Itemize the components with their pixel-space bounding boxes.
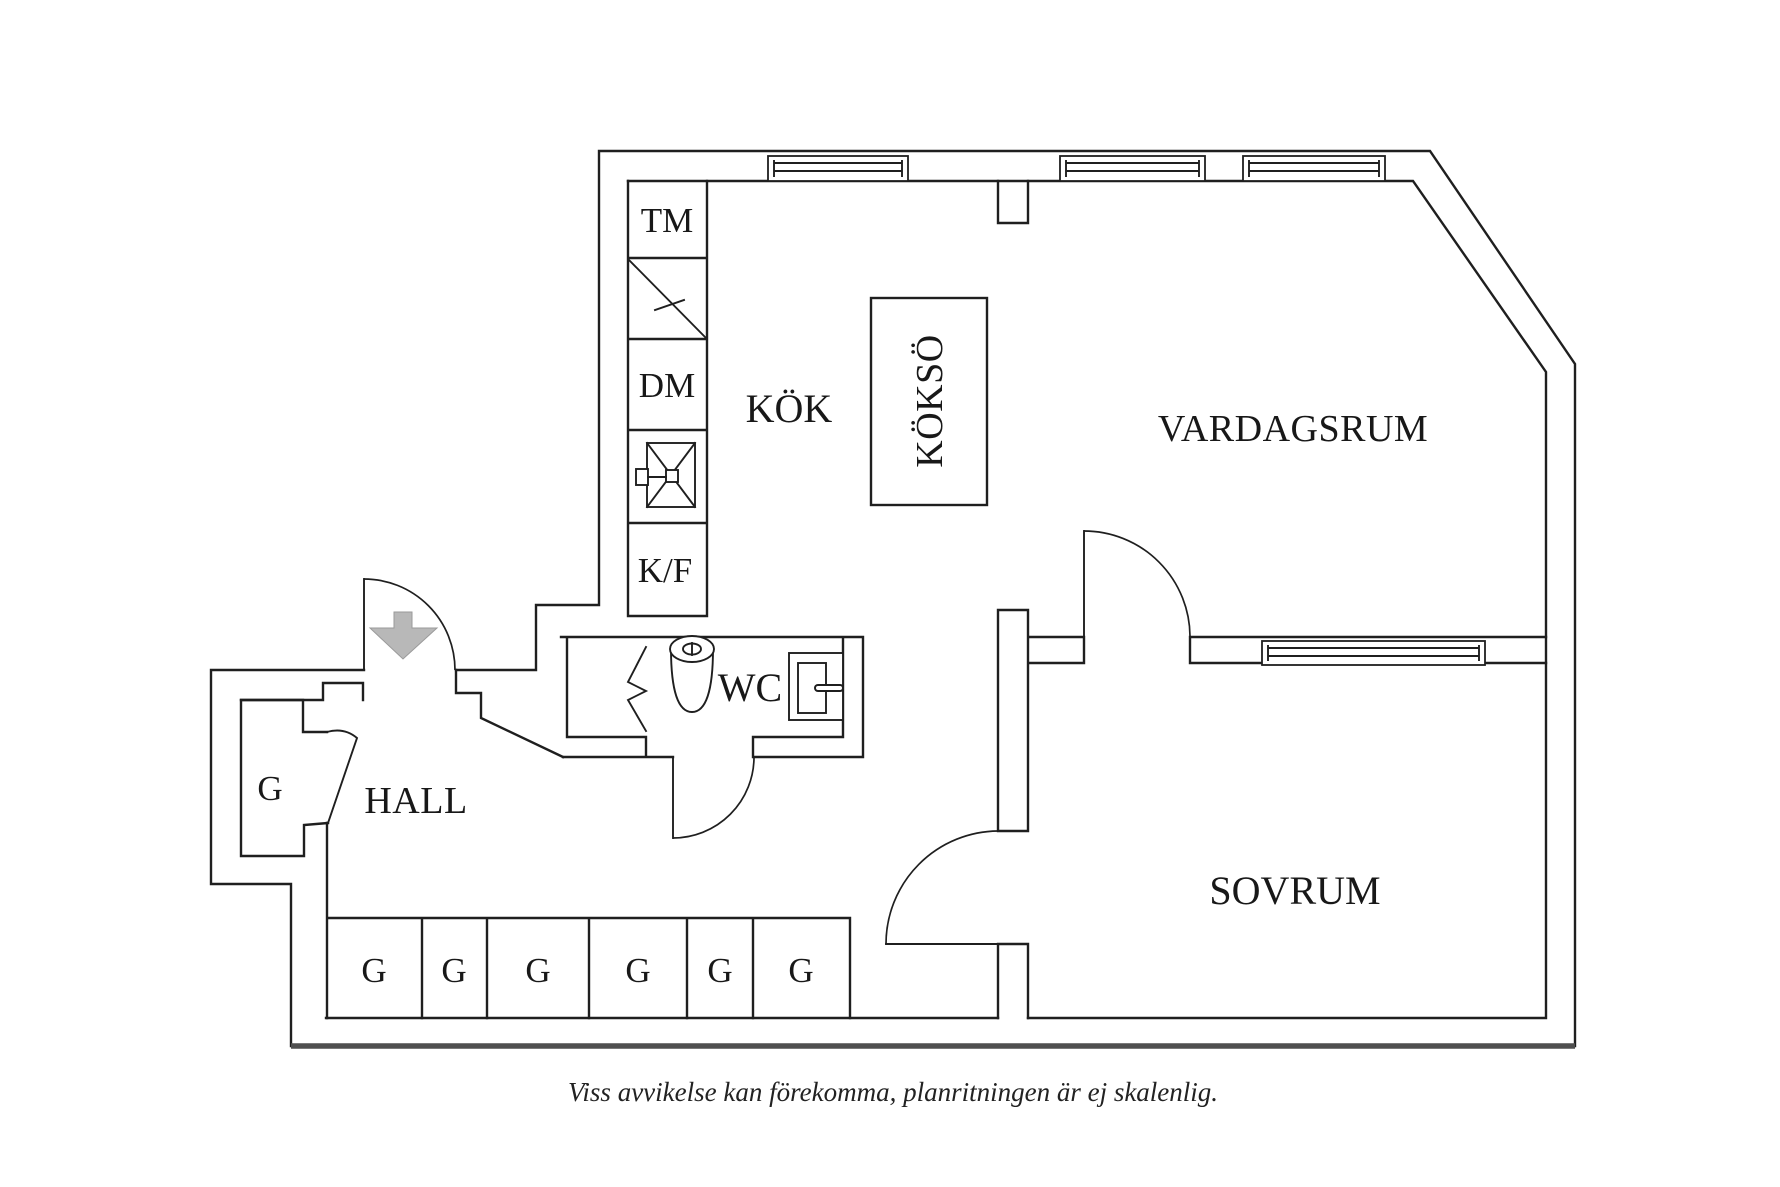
label-washing-machine: TM [641, 201, 694, 240]
toilet-icon [670, 636, 714, 712]
window-frame [768, 156, 908, 181]
window-livingroom-1 [1060, 156, 1205, 181]
label-closet-1: G [361, 951, 386, 990]
label-fridge-freezer: K/F [638, 551, 692, 590]
label-bedroom: SOVRUM [1209, 868, 1380, 913]
window-frame [1060, 156, 1205, 181]
door-swing-arc [673, 757, 754, 838]
hall-entry-inner-walls [241, 670, 563, 757]
entrance-arrow-icon [370, 612, 437, 659]
faucet-base [636, 469, 648, 485]
floor-plan: KÖK KÖKSÖ VARDAGSRUM SOVRUM HALL WC TM D… [0, 0, 1780, 1187]
folding-door-icon [628, 647, 646, 731]
window-pier-stub [998, 181, 1028, 223]
window-frame [1262, 641, 1485, 665]
label-hall: HALL [364, 780, 467, 822]
window-livingroom-2 [1243, 156, 1385, 181]
sink-drain [666, 470, 678, 482]
bedroom-door [886, 831, 998, 944]
door-swing-arc [1084, 531, 1190, 637]
door-swing-arc [886, 831, 998, 944]
label-island: KÖKSÖ [909, 334, 951, 467]
closet-outline [241, 700, 328, 856]
label-closet-4: G [625, 951, 650, 990]
kitchen-sink-icon [636, 443, 695, 507]
pantry-symbol [629, 260, 706, 338]
label-closet-3: G [525, 951, 550, 990]
livingroom-door [1084, 531, 1190, 637]
window-frame [1243, 156, 1385, 181]
label-kitchen: KÖK [746, 386, 833, 431]
window-bedroom [1262, 641, 1485, 665]
label-dishwasher: DM [639, 366, 695, 405]
label-closet-2: G [441, 951, 466, 990]
closet-labels: G G G G G G G [257, 769, 813, 990]
floor-plan-page: KÖK KÖKSÖ VARDAGSRUM SOVRUM HALL WC TM D… [0, 0, 1780, 1187]
wc-sink-icon [789, 653, 843, 720]
label-living-room: VARDAGSRUM [1158, 408, 1428, 450]
hall-closet-row-walls [327, 823, 850, 1018]
label-wc: WC [718, 665, 782, 710]
disclaimer-caption: Viss avvikelse kan förekomma, planritnin… [568, 1077, 1218, 1107]
room-labels: KÖK KÖKSÖ VARDAGSRUM SOVRUM HALL WC TM D… [364, 201, 1428, 913]
wc-door [673, 757, 754, 838]
label-closet-hall: G [257, 769, 282, 808]
label-closet-6: G [788, 951, 813, 990]
label-closet-5: G [707, 951, 732, 990]
window-kitchen [768, 156, 908, 181]
closet-door [327, 730, 357, 823]
bedroom-corridor-wall [998, 610, 1084, 1018]
